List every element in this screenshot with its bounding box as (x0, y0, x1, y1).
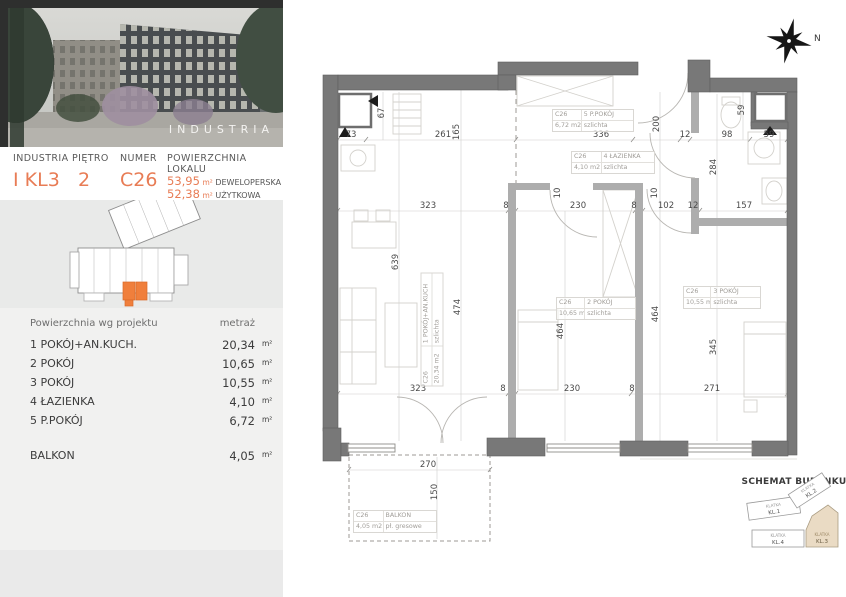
door-arcs (397, 73, 695, 443)
sidebar-footer (0, 550, 283, 597)
svg-text:464: 464 (651, 306, 661, 322)
svg-text:323: 323 (420, 201, 436, 211)
sidebar: INDUSTRIA INDUSTRIA I KL3 PIĘTRO 2 NUMER… (0, 0, 283, 597)
areas-table-title: Powierzchnia wg projektu (30, 318, 158, 329)
svg-text:8: 8 (500, 384, 505, 394)
unit-number-value: C26 (120, 169, 157, 191)
svg-text:67: 67 (377, 108, 387, 119)
room-label-living-kitchen: C261 POKÓJ+AN.KUCH 20,34 m2szlichta (421, 273, 444, 387)
info-number: NUMER C26 (120, 153, 157, 191)
schemat-block-kl3-highlighted: KLATKA KL.3 (806, 505, 838, 547)
schemat-block-kl4: KLATKA KL.4 (752, 530, 804, 547)
areas-table-col-header: metraż (195, 318, 255, 329)
svg-text:345: 345 (709, 339, 719, 355)
svg-text:KLATKA: KLATKA (814, 532, 829, 537)
unit-location-map (0, 200, 283, 308)
svg-text:8: 8 (503, 201, 508, 211)
svg-text:639: 639 (391, 254, 401, 270)
svg-text:261: 261 (435, 130, 451, 140)
svg-text:KL.3: KL.3 (816, 539, 828, 545)
room-label-hall: C265 P.POKÓJ 6,72 m2szlichta (552, 109, 634, 132)
windows (348, 444, 752, 452)
photo-frame: INDUSTRIA (0, 0, 283, 147)
highlighted-unit (123, 282, 147, 306)
svg-text:474: 474 (453, 299, 463, 315)
svg-text:59: 59 (737, 105, 747, 116)
floor-value: 2 (72, 169, 109, 191)
room-label-bathroom: C264 ŁAZIENKA 4,10 m2szlichta (571, 151, 655, 174)
svg-text:270: 270 (420, 460, 436, 470)
room-label-balcony: C26BALKON 4,05 m2pł. gresowe (353, 510, 437, 533)
compass-icon (762, 14, 817, 69)
svg-text:150: 150 (430, 484, 440, 500)
areas-table: Powierzchnia wg projektu metraż 1 POKÓJ+… (0, 308, 283, 550)
svg-text:10: 10 (553, 188, 563, 199)
svg-text:KL.4: KL.4 (772, 540, 784, 546)
building-value: I KL3 (13, 169, 69, 191)
info-area: POWIERZCHNIA LOKALU 53,95 m² DEWELOPERSK… (167, 153, 283, 201)
svg-text:73: 73 (346, 130, 357, 140)
svg-text:200: 200 (652, 116, 662, 132)
svg-text:271: 271 (704, 384, 720, 394)
svg-text:KLATKA: KLATKA (770, 533, 785, 538)
svg-text:12: 12 (680, 130, 691, 140)
building-photo: INDUSTRIA (8, 8, 283, 147)
svg-text:464: 464 (556, 323, 566, 339)
room-label-room3: C263 POKÓJ 10,55 m2szlichta (683, 286, 761, 309)
unit-info-bar: INDUSTRIA I KL3 PIĘTRO 2 NUMER C26 POWIE… (0, 147, 283, 200)
svg-text:157: 157 (736, 201, 752, 211)
unit-location-map-panel (0, 200, 283, 308)
svg-text:10: 10 (650, 188, 660, 199)
svg-text:98: 98 (722, 130, 733, 140)
svg-text:8: 8 (631, 201, 636, 211)
room-label-room2: C262 POKÓJ 10,65 m2szlichta (556, 297, 636, 320)
photo-watermark: INDUSTRIA (169, 123, 274, 136)
svg-text:59: 59 (764, 130, 775, 140)
svg-text:12: 12 (688, 201, 699, 211)
svg-text:230: 230 (564, 384, 580, 394)
svg-text:165: 165 (452, 124, 462, 140)
svg-text:230: 230 (570, 201, 586, 211)
svg-text:102: 102 (658, 201, 674, 211)
floorplan-card: 73 67 261 165 336 12 98 59 59 200 323 8 … (0, 0, 846, 597)
info-floor: PIĘTRO 2 (72, 153, 109, 191)
svg-text:284: 284 (709, 159, 719, 175)
compass-north-label: N (814, 34, 821, 44)
info-building: INDUSTRIA I KL3 (13, 153, 69, 191)
svg-text:8: 8 (629, 384, 634, 394)
